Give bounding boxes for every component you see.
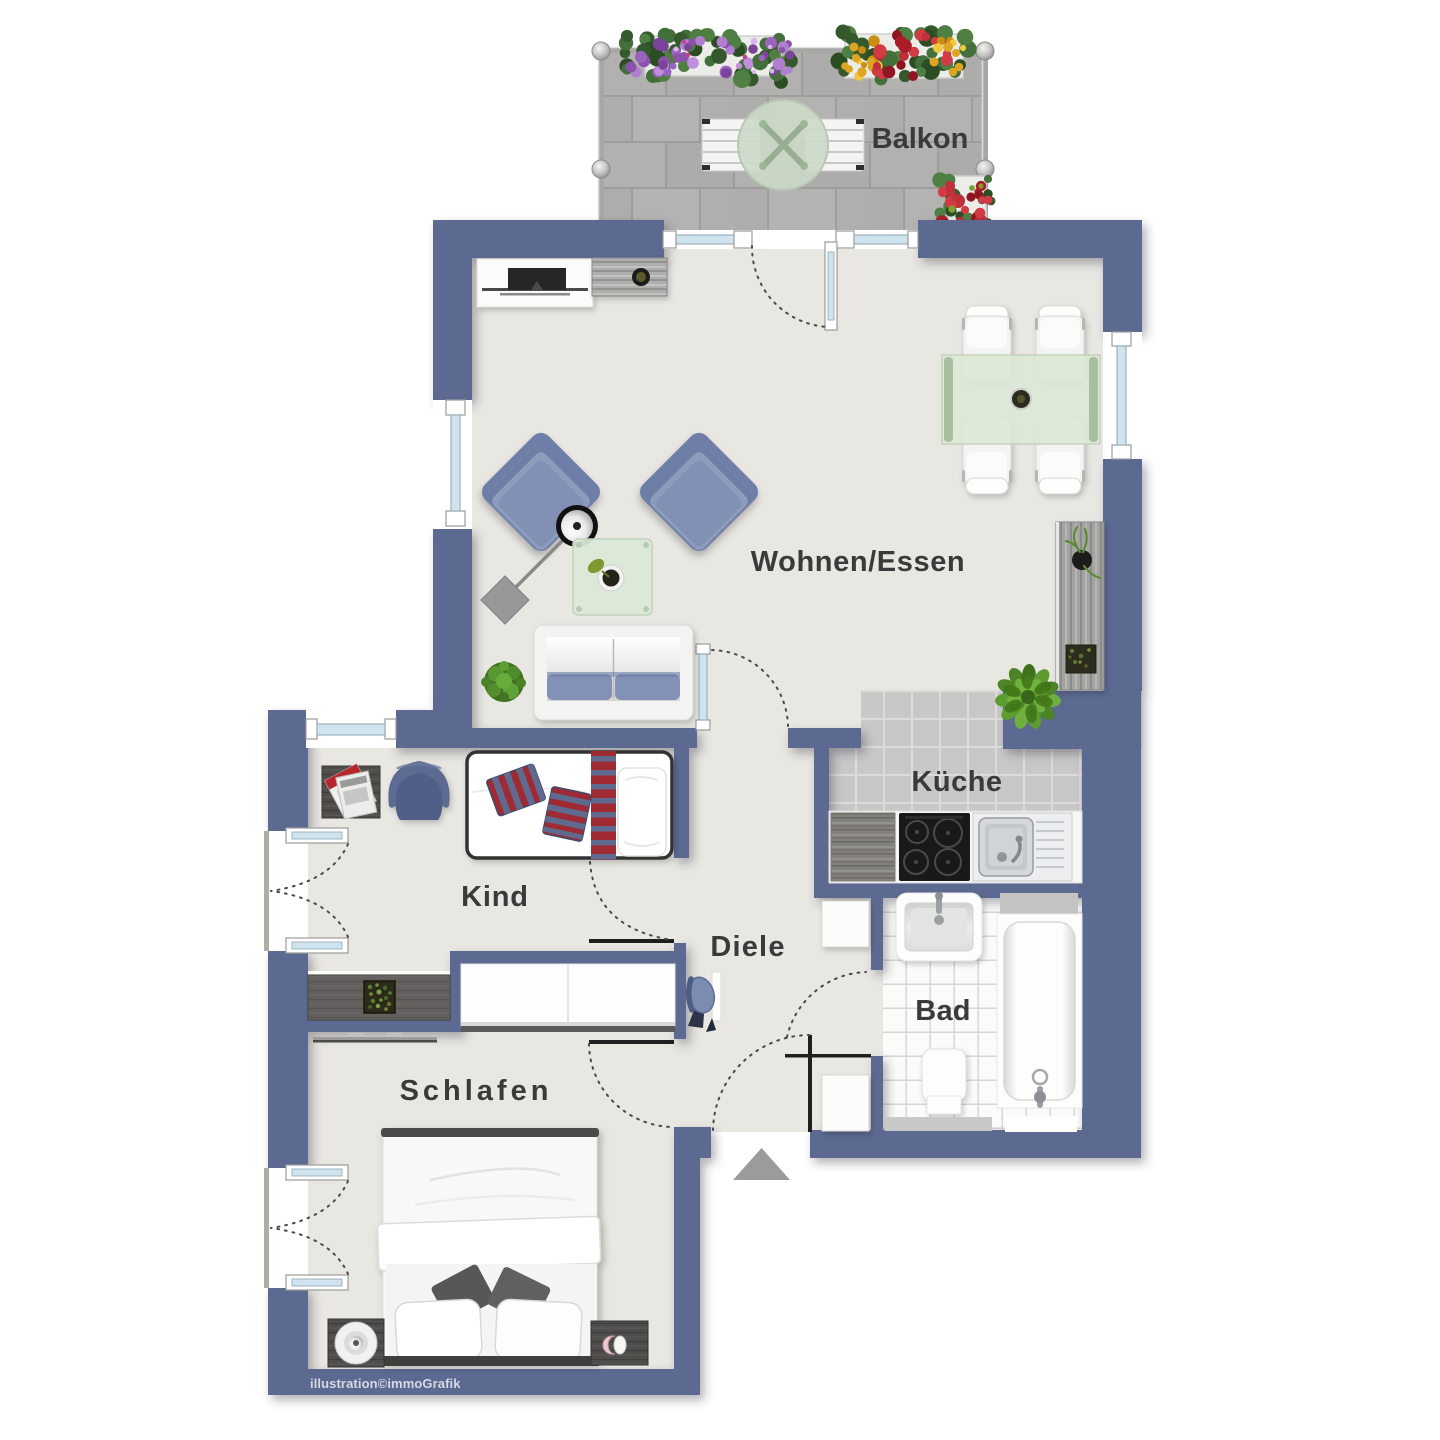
svg-text:Bad: Bad — [915, 995, 970, 1027]
svg-text:Küche: Küche — [911, 766, 1002, 798]
svg-text:Balkon: Balkon — [872, 123, 969, 155]
svg-text:Wohnen/Essen: Wohnen/Essen — [751, 546, 966, 578]
svg-text:Diele: Diele — [710, 931, 785, 963]
svg-text:Kind: Kind — [461, 881, 529, 913]
svg-text:Schlafen: Schlafen — [400, 1075, 553, 1107]
svg-text:illustration©immoGrafik: illustration©immoGrafik — [310, 1376, 461, 1391]
